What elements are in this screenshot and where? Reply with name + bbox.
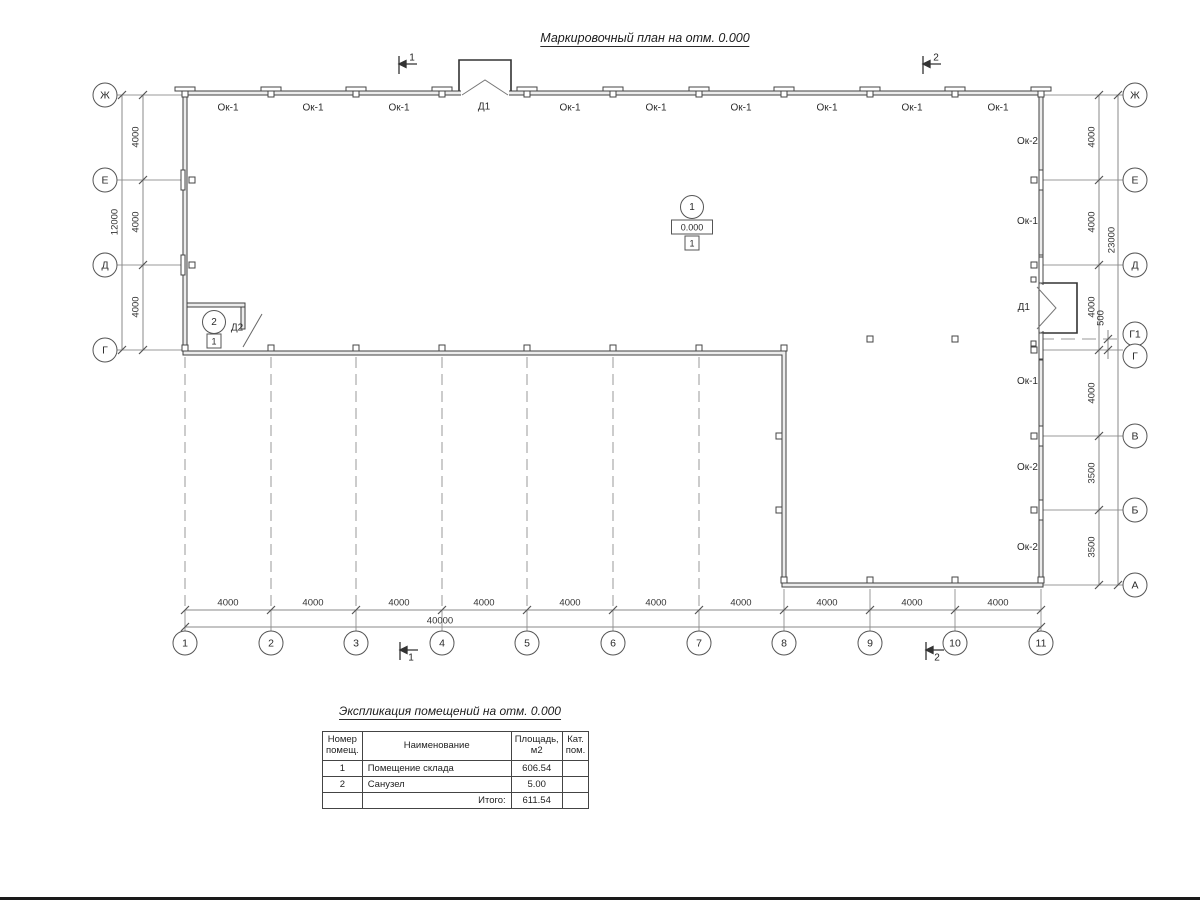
door-label: Д1: [978, 302, 1030, 313]
window-label: Ок-1: [645, 103, 666, 114]
total-category-cell: [562, 793, 589, 809]
section-2-number-top: 2: [933, 53, 939, 64]
room-area: 606.54: [511, 761, 562, 777]
header-room-number: Номер помещ.: [323, 732, 363, 761]
dim-left-total: 12000: [110, 209, 121, 235]
floor-plan-drawing: [0, 0, 1200, 900]
room-category: [562, 761, 589, 777]
window-label: Ок-2: [986, 542, 1038, 553]
axis-bubble-left: Е: [93, 168, 118, 193]
axis-bubble-left: Г: [93, 338, 118, 363]
room-number: 1: [323, 761, 363, 777]
room-name: Санузел: [362, 777, 511, 793]
room-1-elevation: 0.000: [671, 220, 713, 235]
dim-left: 4000: [131, 126, 142, 147]
axis-bubble-right: Г: [1123, 344, 1148, 369]
room-area: 5.00: [511, 777, 562, 793]
door-d2-label: Д2: [231, 323, 243, 334]
header-room-category: Кат. пом.: [562, 732, 589, 761]
table-header-row: Номер помещ. Наименование Площадь, м2 Ка…: [323, 732, 589, 761]
section-2-number-bottom: 2: [934, 653, 940, 664]
room-2-floor-type: 1: [207, 334, 222, 349]
drawing-sheet: Маркировочный план на отм. 0.000 Эксплик…: [0, 0, 1200, 900]
room-number: 2: [323, 777, 363, 793]
header-room-name: Наименование: [362, 732, 511, 761]
drawing-title: Маркировочный план на отм. 0.000: [540, 31, 749, 47]
axis-bubble-column: 3: [344, 631, 369, 656]
dim-right-total: 23000: [1107, 227, 1118, 253]
axis-bubble-column: 4: [430, 631, 455, 656]
axis-bubble-column: 10: [943, 631, 968, 656]
room-1-marker: 1: [680, 195, 704, 219]
axis-bubble-right: Е: [1123, 168, 1148, 193]
section-1-number-top: 1: [409, 53, 415, 64]
window-label: Ок-1: [559, 103, 580, 114]
room-category: [562, 777, 589, 793]
table-row: 2 Санузел 5.00: [323, 777, 589, 793]
dim-right: 3500: [1087, 536, 1098, 557]
axis-bubble-column: 6: [601, 631, 626, 656]
window-label: Ок-2: [986, 136, 1038, 147]
dim-left: 4000: [131, 296, 142, 317]
dim-bottom: 4000: [987, 598, 1008, 609]
axis-bubble-left: Ж: [93, 83, 118, 108]
axis-bubble-column: 11: [1029, 631, 1054, 656]
axis-bubble-left: Д: [93, 253, 118, 278]
dim-bottom: 4000: [388, 598, 409, 609]
dim-right: 3500: [1087, 462, 1098, 483]
dim-bottom: 4000: [302, 598, 323, 609]
window-label: Ок-1: [302, 103, 323, 114]
dim-bottom: 4000: [730, 598, 751, 609]
dim-right: 4000: [1087, 211, 1098, 232]
axis-bubble-right: Ж: [1123, 83, 1148, 108]
total-area: 611.54: [511, 793, 562, 809]
room-1-floor-type: 1: [685, 236, 700, 251]
window-label: Ок-1: [987, 103, 1008, 114]
axis-bubble-right: В: [1123, 424, 1148, 449]
axis-bubble-column: 9: [858, 631, 883, 656]
axis-bubble-column: 2: [259, 631, 284, 656]
axis-bubble-column: 5: [515, 631, 540, 656]
axis-bubble-right: А: [1123, 573, 1148, 598]
section-1-number-bottom: 1: [408, 653, 414, 664]
table-row: 1 Помещение склада 606.54: [323, 761, 589, 777]
window-label: Ок-1: [816, 103, 837, 114]
dim-right-sub: 500: [1096, 310, 1107, 326]
dim-bottom: 4000: [473, 598, 494, 609]
window-label: Ок-1: [986, 376, 1038, 387]
dim-bottom: 4000: [816, 598, 837, 609]
window-label: Ок-1: [986, 216, 1038, 227]
dim-left: 4000: [131, 211, 142, 232]
axis-bubble-right: Д: [1123, 253, 1148, 278]
dim-bottom: 4000: [559, 598, 580, 609]
dim-bottom: 4000: [645, 598, 666, 609]
window-label: Ок-1: [217, 103, 238, 114]
dim-right: 4000: [1087, 382, 1098, 403]
room-2-marker: 2: [202, 310, 226, 334]
room-schedule-table: Номер помещ. Наименование Площадь, м2 Ка…: [322, 731, 589, 809]
header-room-area: Площадь, м2: [511, 732, 562, 761]
dim-bottom-total: 40000: [427, 616, 453, 627]
window-label: Ок-1: [388, 103, 409, 114]
axis-bubble-right: Б: [1123, 498, 1148, 523]
axis-bubble-column: 7: [687, 631, 712, 656]
room-name: Помещение склада: [362, 761, 511, 777]
door-label: Д1: [478, 102, 490, 113]
table-total-row: Итого: 611.54: [323, 793, 589, 809]
axis-bubble-column: 1: [173, 631, 198, 656]
total-label: Итого:: [362, 793, 511, 809]
schedule-title: Экспликация помещений на отм. 0.000: [339, 704, 561, 720]
window-label: Ок-1: [730, 103, 751, 114]
door-d1-right-opening: [1040, 285, 1047, 331]
dim-bottom: 4000: [217, 598, 238, 609]
dim-right: 4000: [1087, 126, 1098, 147]
dim-bottom: 4000: [901, 598, 922, 609]
window-label: Ок-1: [901, 103, 922, 114]
axis-bubble-column: 8: [772, 631, 797, 656]
total-empty-cell: [323, 793, 363, 809]
window-label: Ок-2: [986, 462, 1038, 473]
